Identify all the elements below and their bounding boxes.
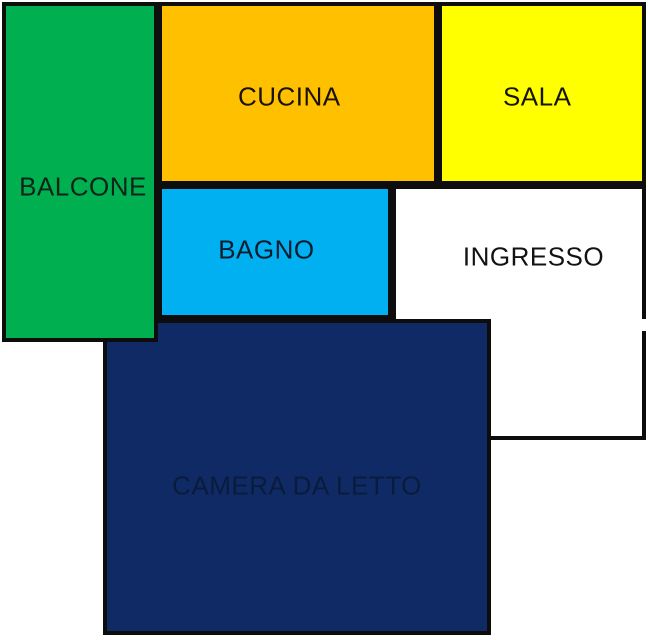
room-label-balcone: BALCONE bbox=[19, 171, 147, 202]
room-bagno: BAGNO bbox=[158, 185, 392, 319]
room-cucina: CUCINA bbox=[158, 2, 438, 185]
room-camera-da-letto: CAMERA DA LETTO bbox=[103, 319, 491, 635]
room-balcone: BALCONE bbox=[2, 2, 158, 342]
room-sala: SALA bbox=[438, 2, 646, 185]
door-opening bbox=[638, 319, 648, 331]
room-label-cucina: CUCINA bbox=[238, 81, 341, 112]
room-label-sala: SALA bbox=[503, 81, 572, 112]
room-label-ingresso: INGRESSO bbox=[463, 241, 604, 272]
room-label-camera-da-letto: CAMERA DA LETTO bbox=[172, 470, 422, 501]
room-label-bagno: BAGNO bbox=[218, 235, 314, 266]
floor-plan-canvas: BALCONE CUCINA SALA INGRESSO BAGNO CAMER… bbox=[0, 0, 648, 640]
